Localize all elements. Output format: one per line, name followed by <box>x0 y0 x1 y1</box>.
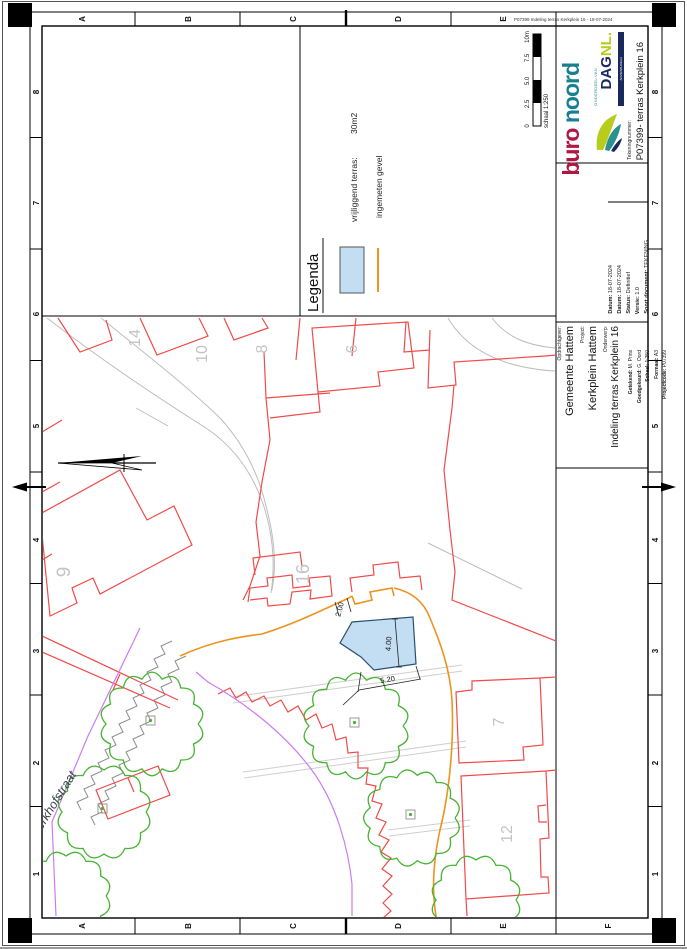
field-schaal: Schaal: 1:250 <box>645 350 653 382</box>
svg-text:6: 6 <box>651 311 660 316</box>
svg-text:0: 0 <box>525 124 531 128</box>
plot-stamp-microtext: P07399 Indeling terras Kerkplein 16 - 18… <box>514 17 613 22</box>
svg-text:2: 2 <box>32 760 41 765</box>
svg-text:4.00: 4.00 <box>384 636 394 651</box>
svg-text:7: 7 <box>651 200 660 205</box>
svg-text:2: 2 <box>651 760 660 765</box>
svg-text:3: 3 <box>32 648 41 653</box>
svg-text:10: 10 <box>194 345 211 363</box>
svg-text:16: 16 <box>293 564 313 584</box>
svg-text:9: 9 <box>54 567 75 578</box>
svg-text:E: E <box>499 923 508 929</box>
drawing-number-value: P07399- terras Kerkplein 16 <box>635 42 646 160</box>
project-field: Project: Kerkplein Hattem <box>580 326 599 410</box>
dagnl-logo: ONDERDEEL VAN DAGNL. ADVIESBUREAU <box>591 30 631 180</box>
corner-mark-bottom-right <box>652 918 676 943</box>
gray-building-rows <box>77 641 415 825</box>
svg-text:8: 8 <box>254 344 271 353</box>
corner-mark-bottom-left <box>8 918 32 943</box>
svg-text:C: C <box>289 16 298 22</box>
svg-text:5: 5 <box>32 423 41 428</box>
svg-text:2.5: 2.5 <box>525 99 531 108</box>
svg-text:D: D <box>394 923 403 929</box>
svg-text:7.5: 7.5 <box>525 53 531 62</box>
field-projectcode: Projectcode: P07399 <box>662 350 670 399</box>
legend-terrace-swatch <box>340 247 364 293</box>
svg-text:4: 4 <box>32 537 41 542</box>
dagnl-leaf-icon <box>593 110 623 152</box>
svg-text:7: 7 <box>32 200 41 205</box>
drawing-number-field: Tekeningnummer: P07399- terras Kerkplein… <box>627 26 646 160</box>
road-lines <box>47 318 555 593</box>
corner-mark-top-left <box>8 3 32 27</box>
svg-text:8: 8 <box>651 89 660 94</box>
field-versie: Versie: 1.0 <box>634 287 642 314</box>
subject-field: Onderwerp: Indeling terras Kerkplein 16 <box>603 326 621 448</box>
field-datum-2: Datum: 18-07-2024 <box>616 265 624 314</box>
field-getekend: Getekend: M. Prins <box>628 350 636 394</box>
field-soort-document: Soort document: TEKENING <box>643 240 651 314</box>
street-name-label: Kerkhofstraat <box>28 768 80 839</box>
svg-text:12: 12 <box>499 825 516 843</box>
cadastral-red-lines <box>40 318 556 918</box>
dagnl-sub-bar: ADVIESBUREAU <box>618 32 624 106</box>
legend-title: Legenda <box>305 253 322 312</box>
site-plan-map: 2.00 4.00 5.20 9 14 10 8 6 16 7 12 Kerkh… <box>22 318 556 944</box>
svg-text:7: 7 <box>491 717 508 726</box>
north-arrow-icon <box>58 454 156 472</box>
svg-text:C: C <box>289 923 298 929</box>
corner-mark-top-right <box>652 3 676 27</box>
svg-text:6: 6 <box>32 311 41 316</box>
field-formaat: Formaat: A3 <box>654 350 662 379</box>
legend-terrace-value: 30m2 <box>349 112 359 134</box>
svg-text:3: 3 <box>651 648 660 653</box>
left-centre-arrow-icon <box>12 483 27 492</box>
path-lines <box>232 665 470 836</box>
scale-bar: 0 2.5 5.0 7.5 10m schaal 1:250 <box>525 31 550 128</box>
svg-text:E: E <box>499 16 508 22</box>
svg-text:8: 8 <box>32 89 41 94</box>
meta-fields: Datum: 18-07-2024 Datum: 18-07-2024 Stat… <box>607 200 651 314</box>
drawing-number-label: Tekeningnummer: <box>627 120 633 160</box>
project-info: Opdrachtgever: Gemeente Hattem Project: … <box>557 326 670 476</box>
legend: Legenda vrijliggend terras: 30m2 ingemet… <box>305 112 384 313</box>
grid-column-labels: A B C D E A B C D E F <box>78 16 613 929</box>
svg-text:5.20: 5.20 <box>380 674 396 685</box>
buro-noord-logo: buro noord <box>553 36 589 176</box>
svg-text:B: B <box>184 16 193 22</box>
scale-caption: schaal 1:250 <box>544 93 550 128</box>
right-centre-arrow-icon <box>661 483 676 492</box>
svg-text:D: D <box>394 16 403 22</box>
svg-text:F: F <box>604 923 613 928</box>
client-field: Opdrachtgever: Gemeente Hattem <box>557 326 576 416</box>
purple-boundary-lines <box>52 628 352 916</box>
legend-facade-label: ingemeten gevel <box>374 156 384 218</box>
svg-text:1: 1 <box>651 871 660 876</box>
field-goedgekeurd: Goedgekeurd: G. Oord <box>637 350 645 403</box>
svg-text:10m: 10m <box>525 31 531 43</box>
centre-arrows <box>12 483 676 492</box>
svg-text:B: B <box>184 923 193 929</box>
dagnl-name: DAGNL. <box>599 32 614 90</box>
terrace-polygon <box>340 617 416 670</box>
drawing-fields: Getekend: M. Prins Goedgekeurd: G. Oord … <box>628 350 670 403</box>
field-status: Status: Definitief <box>625 272 633 314</box>
svg-text:14: 14 <box>127 329 144 347</box>
svg-text:A: A <box>78 16 87 22</box>
svg-text:6: 6 <box>344 344 361 353</box>
svg-text:4: 4 <box>651 537 660 542</box>
field-datum-1: Datum: 18-07-2024 <box>607 265 615 314</box>
svg-text:5.0: 5.0 <box>525 76 531 85</box>
drawing-sheet: A B C D E A B C D E F 8 7 6 5 4 3 2 1 8 … <box>0 0 687 949</box>
legend-terrace-label: vrijliggend terras: <box>349 157 359 222</box>
svg-text:A: A <box>78 923 87 929</box>
svg-text:1: 1 <box>32 871 41 876</box>
